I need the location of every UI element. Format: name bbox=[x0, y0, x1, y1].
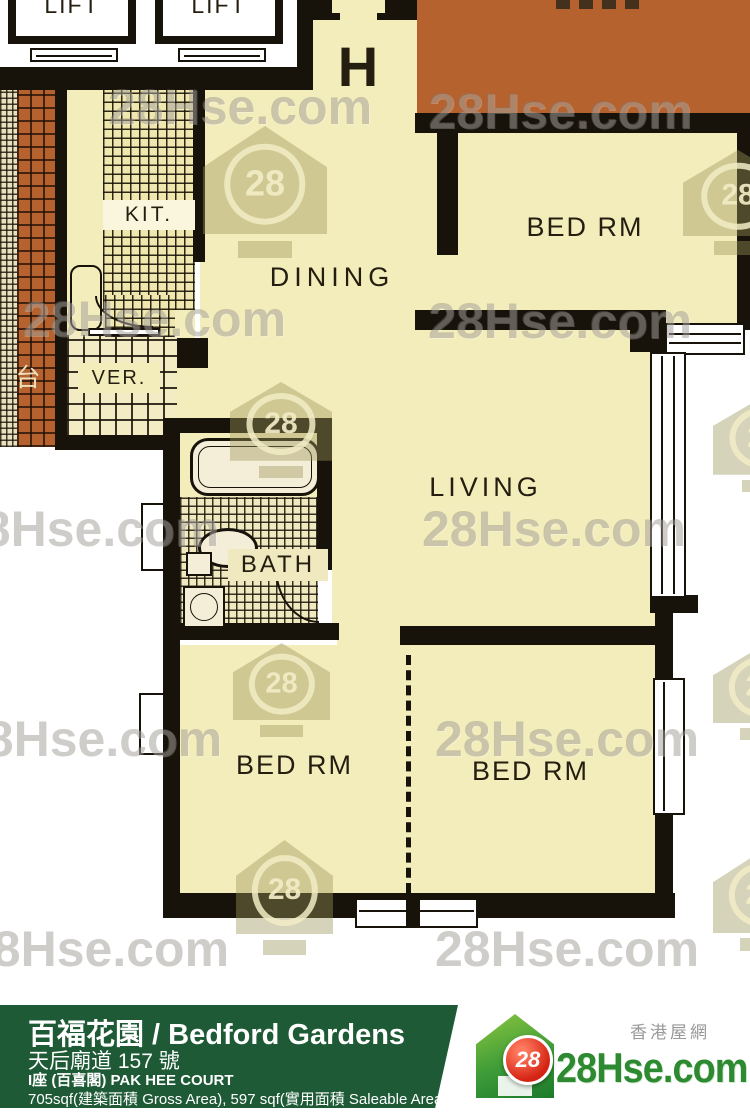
estate-block: I座 (百喜閣) PAK HEE COURT bbox=[28, 1069, 234, 1090]
room-label-living: LIVING bbox=[408, 472, 563, 503]
wall bbox=[400, 626, 655, 645]
bathtub bbox=[190, 438, 320, 496]
watermark-logo: 28 bbox=[713, 396, 750, 492]
logo-site-text: 28Hse.com bbox=[556, 1044, 748, 1092]
lift-label: LIFT bbox=[44, 0, 99, 19]
wall bbox=[163, 418, 180, 900]
watermark-text: 28Hse.com bbox=[0, 500, 219, 558]
wall bbox=[55, 85, 67, 447]
entrance-gap bbox=[330, 0, 387, 13]
watermark-text: 28Hse.com bbox=[435, 710, 699, 768]
door-jamb bbox=[377, 13, 385, 20]
room-label-verandah: VER. bbox=[78, 363, 160, 393]
wall bbox=[437, 133, 458, 255]
room-label-bath: BATH bbox=[228, 549, 328, 581]
watermark-text: 28Hse.com bbox=[22, 290, 286, 348]
watermark-logo: 28 bbox=[713, 851, 750, 951]
logo-tagline: 香港屋網 bbox=[630, 1018, 710, 1043]
watermark-logo: 28 bbox=[713, 646, 750, 740]
basin bbox=[183, 586, 225, 628]
watermark-text: 28Hse.com bbox=[428, 82, 692, 140]
lift-label: LIFT bbox=[191, 0, 246, 19]
wall bbox=[737, 133, 750, 330]
terrace-label: 台 bbox=[8, 358, 48, 394]
room-label-kitchen: KIT. bbox=[103, 200, 195, 230]
lift-shaft: LIFT bbox=[8, 0, 136, 44]
window-mullion bbox=[406, 898, 420, 928]
estate-area: 705sqf(建築面積 Gross Area), 597 sqf(實用面積 Sa… bbox=[28, 1088, 447, 1109]
room-label-bedroom-left: BED RM bbox=[212, 750, 377, 781]
site-logo: 28 28Hse.com 香港屋網 bbox=[470, 1010, 750, 1108]
wall bbox=[385, 0, 417, 20]
dining-west-sliver bbox=[177, 367, 202, 418]
watermark-text: 28Hse.com bbox=[0, 710, 222, 768]
door-jamb bbox=[332, 13, 340, 20]
window bbox=[650, 352, 686, 598]
lift-door bbox=[178, 48, 266, 62]
watermark-text: 28Hse.com bbox=[435, 920, 699, 978]
watermark-text: 28Hse.com bbox=[108, 78, 372, 136]
watermark-text: 28Hse.com bbox=[422, 500, 686, 558]
wall bbox=[313, 0, 332, 20]
wall bbox=[317, 418, 332, 570]
watermark-text: 28Hse.com bbox=[0, 920, 229, 978]
lift-door bbox=[30, 48, 118, 62]
room-label-dining: DINING bbox=[252, 262, 412, 293]
logo-badge: 28 bbox=[503, 1035, 553, 1085]
wall bbox=[163, 418, 330, 433]
room-divider-dashed bbox=[406, 655, 411, 893]
clipped-text-fragment bbox=[556, 0, 642, 9]
wall bbox=[55, 435, 180, 450]
watermark-text: 28Hse.com bbox=[428, 292, 692, 350]
room-label-bedroom-top: BED RM bbox=[505, 212, 665, 243]
lift-shaft: LIFT bbox=[155, 0, 283, 44]
floor-plan-page: LIFT LIFT bbox=[0, 0, 750, 1113]
